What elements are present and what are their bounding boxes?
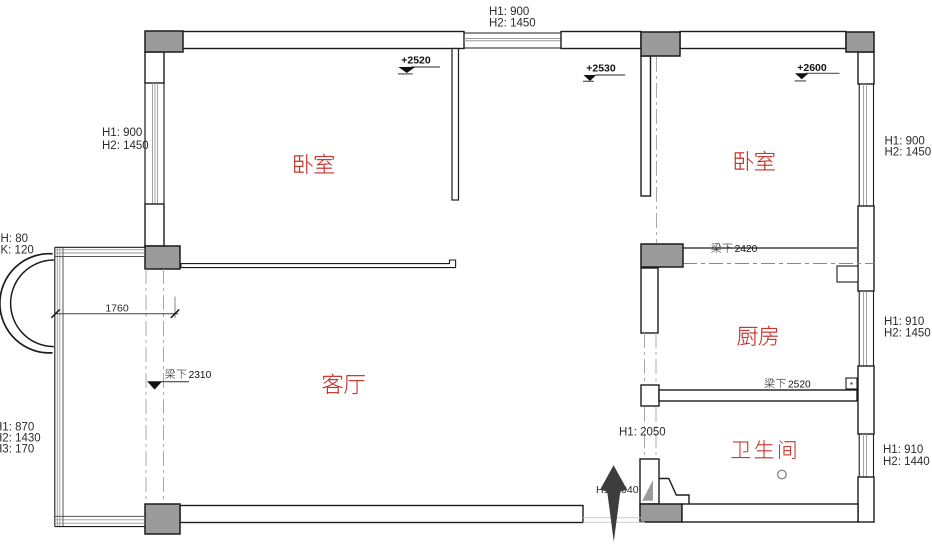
svg-text:H1: 900: H1: 900	[489, 6, 529, 18]
svg-text:+2520: +2520	[401, 55, 431, 67]
svg-text:+2530: +2530	[586, 62, 616, 74]
svg-text:H1: 2050: H1: 2050	[619, 426, 666, 438]
svg-text:H3: 170: H3: 170	[0, 444, 34, 456]
svg-text:1760: 1760	[105, 303, 129, 315]
svg-text:H1: 910: H1: 910	[884, 316, 924, 328]
svg-text:2520: 2520	[788, 379, 811, 390]
svg-text:K: 120: K: 120	[1, 245, 34, 257]
svg-text:H1: 910: H1: 910	[883, 444, 923, 456]
svg-text:H1: 900: H1: 900	[102, 127, 142, 139]
svg-text:2310: 2310	[189, 370, 212, 381]
svg-text:H2: 1450: H2: 1450	[884, 328, 931, 340]
svg-text:H2: 1450: H2: 1450	[489, 17, 536, 29]
svg-text:2420: 2420	[735, 244, 758, 255]
svg-text:H2: 1450: H2: 1450	[885, 147, 932, 159]
svg-text:H: 80: H: 80	[1, 233, 29, 245]
svg-text:H2: 1450: H2: 1450	[102, 140, 149, 152]
svg-text:+2600: +2600	[797, 62, 827, 74]
svg-text:H2: 1440: H2: 1440	[883, 456, 930, 468]
